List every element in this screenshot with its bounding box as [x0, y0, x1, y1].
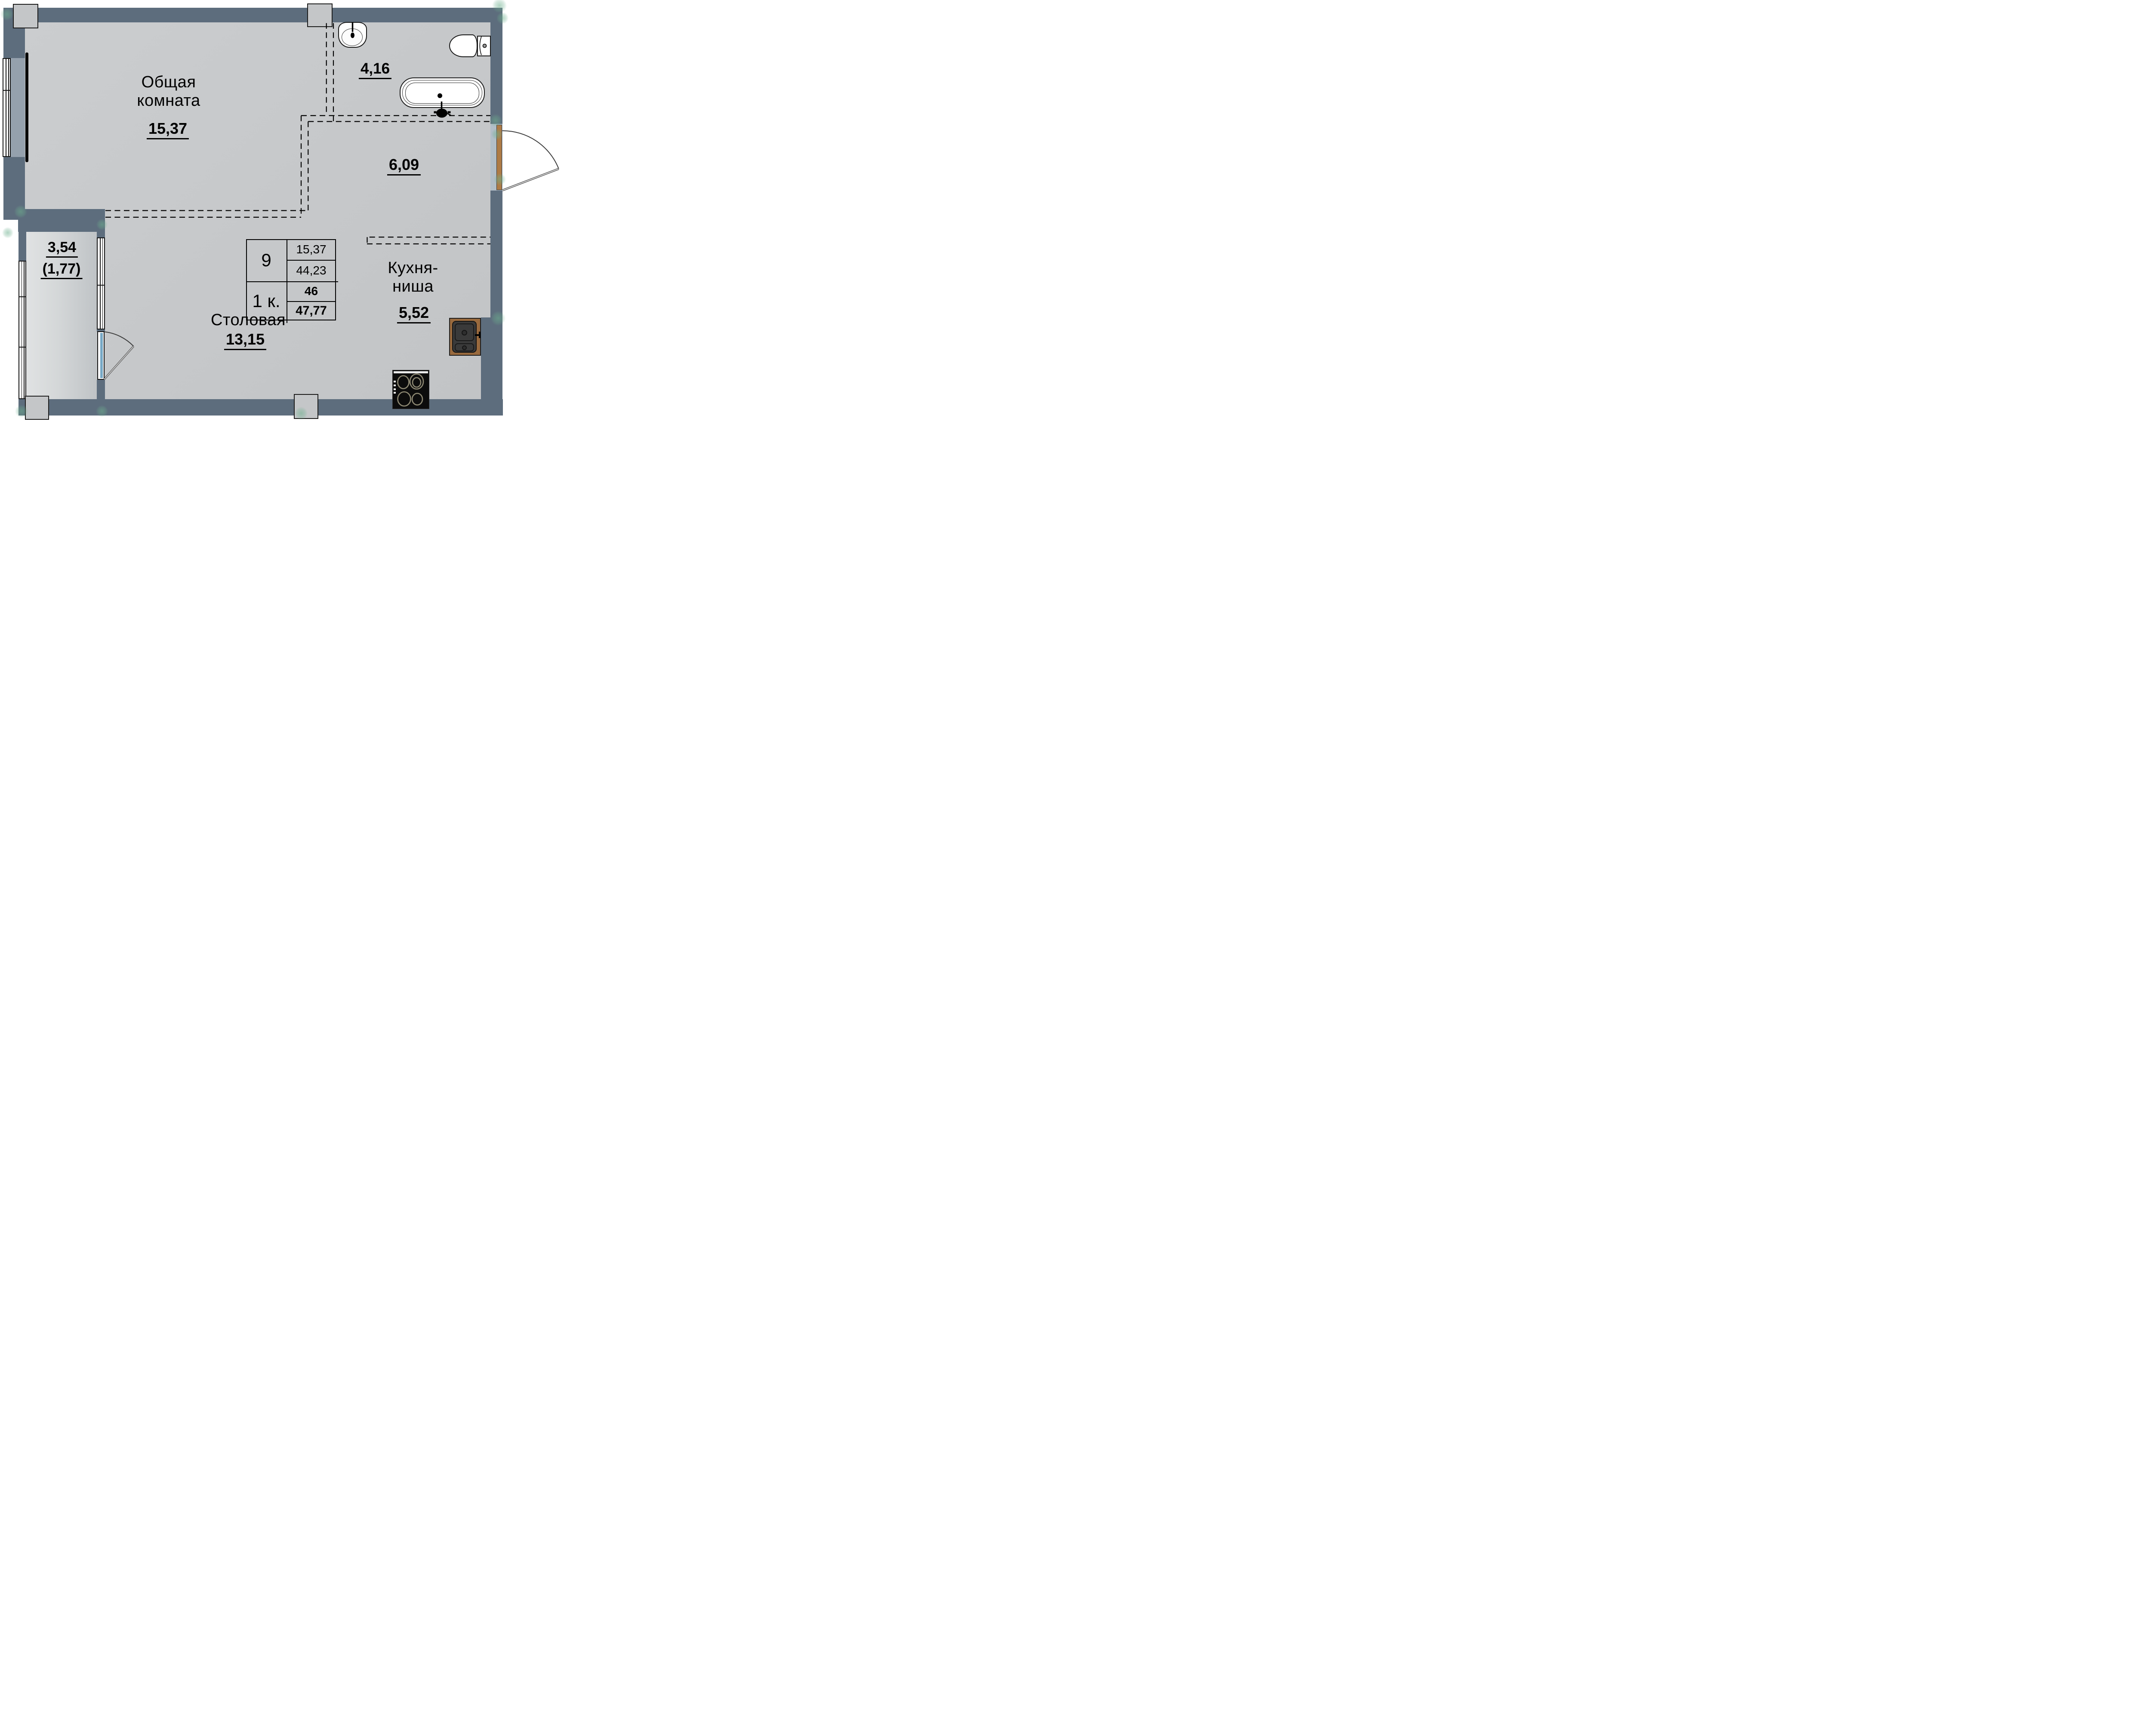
kitchen-label-line1: Кухня- [388, 259, 438, 277]
stamp-position: 9 [261, 250, 271, 271]
stamp-h-divider-right1 [287, 260, 336, 261]
stamp-living-area: 15,37 [296, 243, 326, 256]
kitchen-area: 5,52 [397, 304, 431, 323]
living-room-label-line2: комната [137, 92, 200, 110]
balcony-door-swing [104, 332, 134, 380]
bathroom-area: 4,16 [359, 60, 391, 79]
balcony-area: 3,54 [46, 239, 78, 258]
hall-area: 6,09 [387, 156, 421, 175]
marker-green-icon [491, 129, 502, 140]
marker-green-icon [15, 405, 28, 418]
marker-green-icon [14, 205, 27, 218]
stamp-type: 1 к. [252, 291, 280, 311]
stamp-total-area: 47,77 [296, 304, 327, 318]
dining-label: Столовая [211, 311, 286, 329]
marker-green-icon [496, 12, 508, 24]
kitchen-label-line2: ниша [392, 277, 434, 295]
washbasin-faucet-icon [351, 22, 354, 38]
marker-green-icon [0, 8, 13, 21]
marker-green-icon [96, 219, 108, 230]
marker-green-icon [494, 173, 506, 185]
bathtub-faucet-icon [434, 93, 451, 118]
entrance-door-arc [502, 131, 559, 169]
stove-burners [398, 374, 424, 406]
stamp-area-no-balcony: 44,23 [296, 264, 326, 277]
floor-plan: 9 1 к. 15,37 44,23 46 47,77 Общая комнат… [0, 0, 568, 434]
living-room-label: Общая комната [137, 73, 200, 110]
dining-area: 13,15 [224, 330, 266, 350]
marker-green-icon [491, 311, 505, 326]
kitchen-label: Кухня- ниша [388, 259, 438, 296]
stamp-h-divider-right2 [287, 301, 336, 302]
marker-green-icon [96, 405, 108, 417]
marker-green-icon [489, 114, 502, 127]
living-room-label-line1: Общая [142, 73, 196, 91]
plan-linework [0, 0, 568, 434]
stamp-h-divider-full [246, 281, 338, 282]
living-room-area: 15,37 [147, 120, 189, 139]
entrance-door-swing [502, 131, 559, 191]
balcony-area-coeff: (1,77) [41, 261, 83, 279]
marker-green-icon [2, 227, 13, 238]
balcony-door-arc [105, 332, 134, 347]
marker-green-icon [295, 407, 308, 420]
stamp-number: 46 [305, 284, 318, 298]
toilet-tank-details [480, 37, 486, 55]
